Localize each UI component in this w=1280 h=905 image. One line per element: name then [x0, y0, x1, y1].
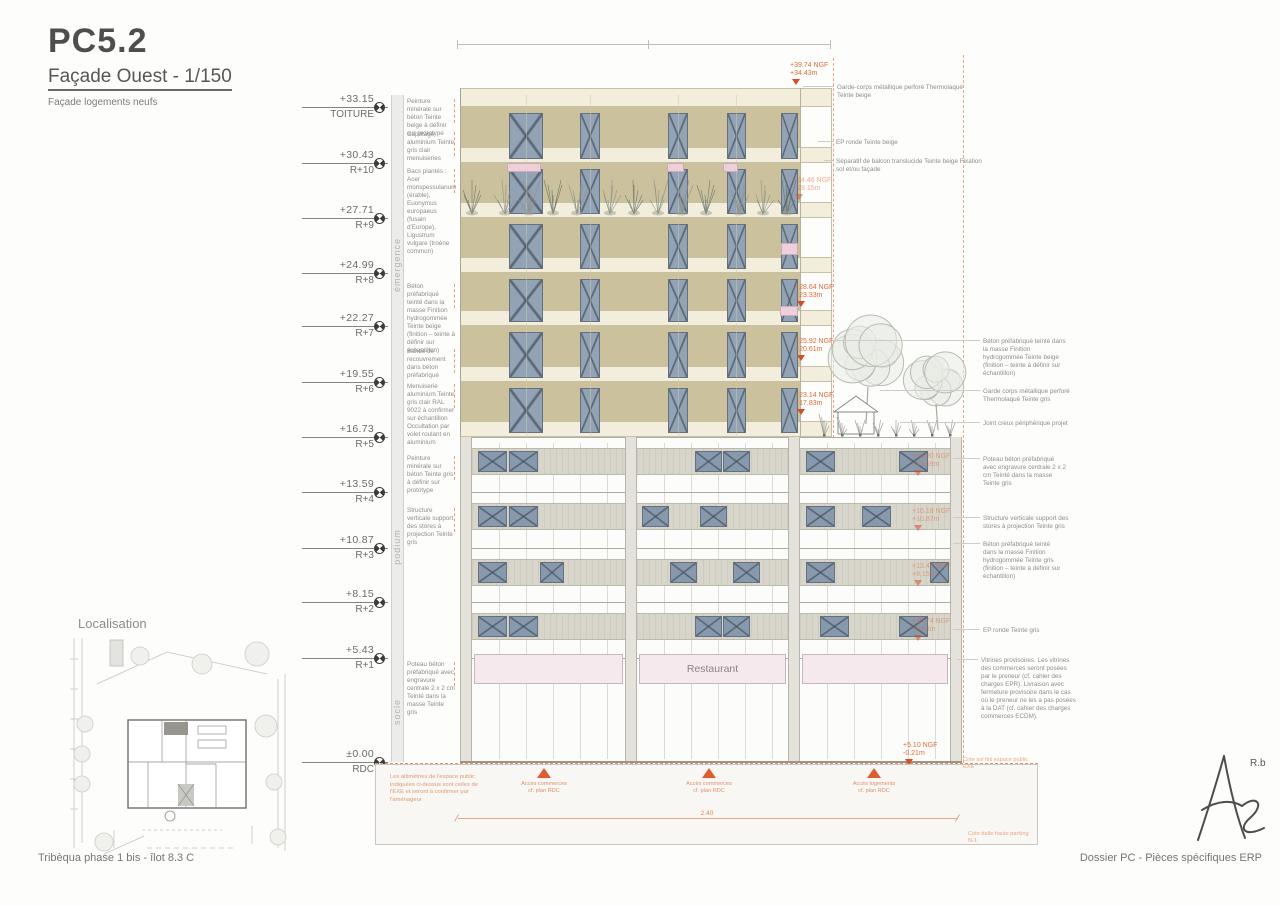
- ngf-marker: +23.14 NGF+17.83m: [795, 392, 865, 415]
- sketch-line: [472, 190, 480, 214]
- ground-dimension-line: [458, 818, 958, 819]
- facade-note-right: Béton préfabriqué teinté dans la masse F…: [983, 338, 1067, 378]
- dimension-tick: [648, 40, 649, 49]
- level-value: +16.73: [288, 423, 374, 435]
- leader-tick: [454, 284, 455, 308]
- access-arrow-icon: [702, 768, 716, 778]
- leader-tick: [454, 456, 455, 480]
- facade-note-right: Vitrines provisoires. Les vitrines des c…: [981, 657, 1077, 721]
- window: [509, 506, 538, 527]
- level-marker-icon: [374, 543, 385, 554]
- access-caption-line2: cf. plan RDC: [511, 788, 577, 795]
- sketch-line: [577, 185, 583, 214]
- window: [509, 451, 538, 472]
- restaurant-sign: Restaurant: [640, 655, 785, 683]
- level-label: R+4: [288, 494, 374, 505]
- ngf-marker: +39.74 NGF+34.43m: [790, 62, 860, 85]
- ngf-line2: +10.87m: [912, 516, 982, 524]
- ngf-marker: +16.18 NGF+10.87m: [912, 508, 982, 531]
- ngf-line2: +20.61m: [795, 346, 865, 354]
- column: [460, 437, 472, 762]
- leader-tick: [454, 349, 455, 373]
- leader-line: [818, 141, 833, 142]
- window: [862, 506, 891, 527]
- window: [540, 562, 564, 583]
- ngf-line1: +10.74 NGF: [912, 618, 982, 626]
- terrace-plants: [462, 167, 802, 219]
- plant-base: [700, 211, 712, 216]
- plant-base: [757, 211, 769, 216]
- sketch-line: [553, 180, 561, 214]
- shopfront-band: [802, 654, 948, 684]
- window: [642, 506, 669, 527]
- facade-note-right: Joint creux périphérique projet: [983, 420, 1075, 428]
- localisation-title: Localisation: [78, 616, 147, 631]
- level-arrow-icon: [797, 301, 805, 307]
- top-dimension-line: [457, 44, 831, 45]
- level-marker-icon: [374, 487, 385, 498]
- level-marker-icon: [374, 653, 385, 664]
- ngf-line1: +16.18 NGF: [912, 508, 982, 516]
- sketch-line: [553, 185, 562, 214]
- level-label: R+7: [288, 328, 374, 339]
- signature: R.b: [1182, 750, 1277, 845]
- mullion-line: [607, 443, 608, 759]
- podium-floor-line: [460, 548, 962, 549]
- access-caption-line2: cf. plan RDC: [676, 788, 742, 795]
- access-caption-line2: cf. plan RDC: [841, 788, 907, 795]
- shopfront-band: Restaurant: [639, 654, 786, 684]
- mullion-line: [854, 443, 855, 759]
- window: [478, 506, 507, 527]
- plant-base: [652, 211, 664, 216]
- level-arrow-icon: [792, 79, 800, 85]
- ngf-line1: +18.90 NGF: [912, 453, 982, 461]
- mullion-line: [827, 443, 828, 759]
- facade-note-left: Bande de recouvrement dans béton préfabr…: [407, 348, 455, 380]
- zone-label: podium: [391, 517, 403, 577]
- level-label: R+1: [288, 660, 374, 671]
- shrub-base: [841, 434, 844, 437]
- plant-base: [523, 211, 535, 216]
- ground-note-left: Les altimétries de l'espace public indiq…: [390, 774, 484, 804]
- shopfront-band: [474, 654, 623, 684]
- ground-dimension-value: 2.40: [687, 810, 727, 817]
- window: [700, 506, 727, 527]
- window: [478, 451, 507, 472]
- level-marker-icon: [374, 158, 385, 169]
- mullion-line: [691, 443, 692, 759]
- sketch-line: [569, 185, 577, 214]
- zone-strip: [391, 95, 404, 762]
- level-label: R+3: [288, 550, 374, 561]
- shrub-base: [877, 434, 880, 437]
- balcony-separator: [780, 306, 798, 316]
- map-building-footprint: [128, 720, 246, 821]
- sketch-line: [706, 185, 714, 214]
- level-label: R+9: [288, 220, 374, 231]
- facade-note-left: Structure verticale support des stores à…: [407, 507, 455, 547]
- level-arrow-icon: [914, 580, 922, 586]
- podium-floor-line: [460, 492, 962, 493]
- ngf-line1: +5.10 NGF: [903, 742, 973, 750]
- facade-note-left: Poteau béton préfabriqué avec engravure …: [407, 661, 455, 717]
- localisation-map: [52, 634, 304, 856]
- level-marker-icon: [374, 597, 385, 608]
- facade-note-left: Béton préfabriqué teinté dans la masse F…: [407, 283, 455, 355]
- shrub-base: [913, 434, 916, 437]
- column: [788, 437, 800, 762]
- facade-note-right: Structure verticale support des stores à…: [983, 515, 1069, 531]
- window: [695, 451, 722, 472]
- access-arrow-icon: [537, 768, 551, 778]
- mullion-line: [526, 443, 527, 759]
- mullion-line: [718, 443, 719, 759]
- level-arrow-icon: [914, 525, 922, 531]
- window: [670, 562, 697, 583]
- ngf-marker: +13.46 NGF+8.15m: [912, 563, 982, 586]
- level-arrow-icon: [797, 355, 805, 361]
- ngf-line2: +17.83m: [795, 400, 865, 408]
- level-marker-icon: [374, 268, 385, 279]
- window: [806, 506, 835, 527]
- sheet-title: Façade Ouest - 1/150: [48, 66, 232, 91]
- ngf-line1: +39.74 NGF: [790, 62, 860, 70]
- leader-line: [824, 160, 833, 161]
- facade-band: [637, 559, 788, 586]
- leader-line: [900, 422, 980, 423]
- sketch-line: [544, 180, 553, 214]
- leader-line: [803, 86, 834, 87]
- level-marker-icon: [374, 102, 385, 113]
- ngf-marker: +25.92 NGF+20.61m: [795, 338, 865, 361]
- sketch-circle: [925, 352, 966, 393]
- ngf-line2: +8.15m: [912, 571, 982, 579]
- leader-tick: [454, 384, 455, 408]
- facade-note-right: EP ronde Teinte gris: [983, 627, 1069, 635]
- dimension-tick: [830, 40, 831, 49]
- ngf-marker: +34.46 NGF+29.15m: [793, 177, 863, 200]
- facade-note-left: Capotage aluminium Teinte gris clair men…: [407, 131, 455, 163]
- sheet-caption: Façade logements neufs: [48, 97, 158, 108]
- level-label: RDC: [288, 764, 374, 775]
- mullion-line: [580, 443, 581, 759]
- facade-note-left: Peinture minérale sur béton Teinte gris …: [407, 455, 455, 495]
- map-misc-lines: [104, 826, 252, 854]
- level-value: +13.59: [288, 478, 374, 490]
- access-caption-line1: Accès commerces: [511, 781, 577, 788]
- ngf-marker: +18.90 NGF+13.59m: [912, 453, 982, 476]
- window: [478, 562, 507, 583]
- window: [509, 616, 538, 637]
- facade-note-right: Garde corps métallique perforé Thermolaq…: [983, 388, 1071, 404]
- facade-note-right: Béton préfabriqué teinté dans la masse F…: [983, 541, 1065, 581]
- ngf-line1: +13.46 NGF: [912, 563, 982, 571]
- window: [723, 616, 750, 637]
- footer-project: Tribèqua phase 1 bis - îlot 8.3 C: [38, 852, 194, 864]
- level-value: +8.15: [288, 588, 374, 600]
- ngf-line1: +23.14 NGF: [795, 392, 865, 400]
- leader-line: [957, 659, 978, 660]
- ngf-line2: +13.59m: [912, 461, 982, 469]
- emergence-left-edge: [460, 88, 461, 437]
- ngf-line2: +23.33m: [795, 292, 865, 300]
- leader-tick: [454, 169, 455, 193]
- balcony-separator: [781, 243, 798, 255]
- signature-initials: R.b: [1250, 758, 1266, 769]
- level-value: +5.43: [288, 644, 374, 656]
- shrub-base: [895, 434, 898, 437]
- level-marker-icon: [374, 321, 385, 332]
- level-arrow-icon: [914, 470, 922, 476]
- shrub-base: [823, 434, 826, 437]
- level-value: +19.55: [288, 368, 374, 380]
- ngf-line1: +34.46 NGF: [793, 177, 863, 185]
- plant-base: [628, 211, 640, 216]
- roof-parapet: [460, 88, 832, 107]
- level-value: +27.71: [288, 204, 374, 216]
- ground-note-top-right: Cote sol fini espace public EXE: [963, 757, 1037, 770]
- level-label: R+5: [288, 439, 374, 450]
- emergence-right-edge: [800, 88, 801, 437]
- mullion-line: [745, 443, 746, 759]
- window: [806, 562, 835, 583]
- window: [478, 616, 507, 637]
- access-caption-line1: Accès logements: [841, 781, 907, 788]
- plant-base: [547, 211, 559, 216]
- level-value: +24.99: [288, 259, 374, 271]
- leader-line: [880, 390, 980, 391]
- facade-note-right: Garde-corps métallique perforé Thermolaq…: [837, 84, 977, 100]
- mullion-line: [935, 443, 936, 759]
- level-label: TOITURE: [288, 109, 374, 120]
- mullion-line: [908, 443, 909, 759]
- plant-base: [604, 211, 616, 216]
- ngf-marker: +28.64 NGF+23.33m: [795, 284, 865, 307]
- ngf-line2: +5.43m: [912, 626, 982, 634]
- level-marker-icon: [374, 213, 385, 224]
- plant-base: [499, 211, 511, 216]
- mullion-line: [553, 443, 554, 759]
- mullion-line: [664, 443, 665, 759]
- leader-tick: [454, 132, 455, 156]
- facade-note-right: Poteau béton préfabriqué avec engravure …: [983, 456, 1069, 488]
- mullion-line: [499, 443, 500, 759]
- facade-note-right: EP ronde Teinte beige: [836, 139, 936, 147]
- mullion-line: [772, 443, 773, 759]
- facade-note-left: Bacs plantés : Acer monspessulanum (érab…: [407, 168, 455, 257]
- window: [781, 113, 798, 159]
- dimension-tick: [457, 40, 458, 49]
- ngf-line2: +34.43m: [790, 70, 860, 78]
- leader-tick: [454, 662, 455, 686]
- podium-floor-line: [460, 602, 962, 603]
- plant-base: [466, 211, 478, 216]
- column: [950, 437, 962, 762]
- window: [806, 451, 835, 472]
- axis-line: [590, 95, 591, 437]
- axis-line: [526, 95, 527, 437]
- sketch-line: [731, 190, 739, 214]
- facade-note-left: Menuiserie aluminium Teinte gris clair R…: [407, 383, 455, 447]
- sketch-line: [860, 420, 865, 436]
- level-value: ±0.00: [288, 748, 374, 760]
- plant-base: [781, 211, 793, 216]
- podium-base: [460, 437, 962, 762]
- access-caption: Accès logementscf. plan RDC: [841, 781, 907, 795]
- level-label: R+6: [288, 384, 374, 395]
- level-label: R+10: [288, 165, 374, 176]
- leader-tick: [454, 508, 455, 532]
- access-caption: Accès commercescf. plan RDC: [511, 781, 577, 795]
- access-caption-line1: Accès commerces: [676, 781, 742, 788]
- level-value: +33.15: [288, 93, 374, 105]
- ngf-line2: +29.15m: [793, 185, 863, 193]
- leader-tick: [454, 99, 455, 123]
- sketch-line: [697, 185, 706, 214]
- column: [625, 437, 637, 762]
- window: [733, 562, 760, 583]
- window: [820, 616, 849, 637]
- shrub-base: [949, 434, 952, 437]
- access-caption: Accès commercescf. plan RDC: [676, 781, 742, 795]
- zone-label: socle: [391, 682, 403, 742]
- ground-note-bottom-right: Cote dalle haute parking N-1: [968, 831, 1036, 844]
- level-label: R+2: [288, 604, 374, 615]
- level-value: +30.43: [288, 149, 374, 161]
- sheet-code: PC5.2: [48, 22, 148, 61]
- facade-drawing-sheet: PC5.2 Façade Ouest - 1/150 Façade logeme…: [0, 0, 1280, 905]
- plant-base: [733, 211, 745, 216]
- axis-line: [736, 95, 737, 437]
- sketch-circle: [859, 324, 902, 367]
- shrub-base: [859, 434, 862, 437]
- facade-note-right: Séparatif de balcon translucide Teinte b…: [836, 158, 984, 174]
- level-arrow-icon: [797, 409, 805, 415]
- level-marker-icon: [374, 432, 385, 443]
- level-marker-icon: [374, 377, 385, 388]
- mullion-line: [881, 443, 882, 759]
- ngf-line1: +25.92 NGF: [795, 338, 865, 346]
- window: [695, 616, 722, 637]
- access-arrow-icon: [867, 768, 881, 778]
- plant-base: [676, 211, 688, 216]
- level-arrow-icon: [914, 635, 922, 641]
- roof-shrubs: [816, 412, 968, 438]
- ground-box-dashed-top: [375, 763, 1038, 764]
- level-value: +22.27: [288, 312, 374, 324]
- axis-line: [678, 95, 679, 437]
- ngf-marker: +10.74 NGF+5.43m: [912, 618, 982, 641]
- ngf-line1: +28.64 NGF: [795, 284, 865, 292]
- level-value: +10.87: [288, 534, 374, 546]
- sketch-line: [682, 180, 689, 214]
- level-label: R+8: [288, 275, 374, 286]
- leader-line: [953, 543, 980, 544]
- plant-base: [571, 211, 583, 216]
- sketch-line: [658, 180, 668, 214]
- shrub-base: [931, 434, 934, 437]
- window: [723, 451, 750, 472]
- level-arrow-icon: [795, 194, 803, 200]
- zone-label: émergence: [391, 235, 403, 295]
- footer-dossier: Dossier PC - Pièces spécifiques ERP: [1000, 852, 1262, 864]
